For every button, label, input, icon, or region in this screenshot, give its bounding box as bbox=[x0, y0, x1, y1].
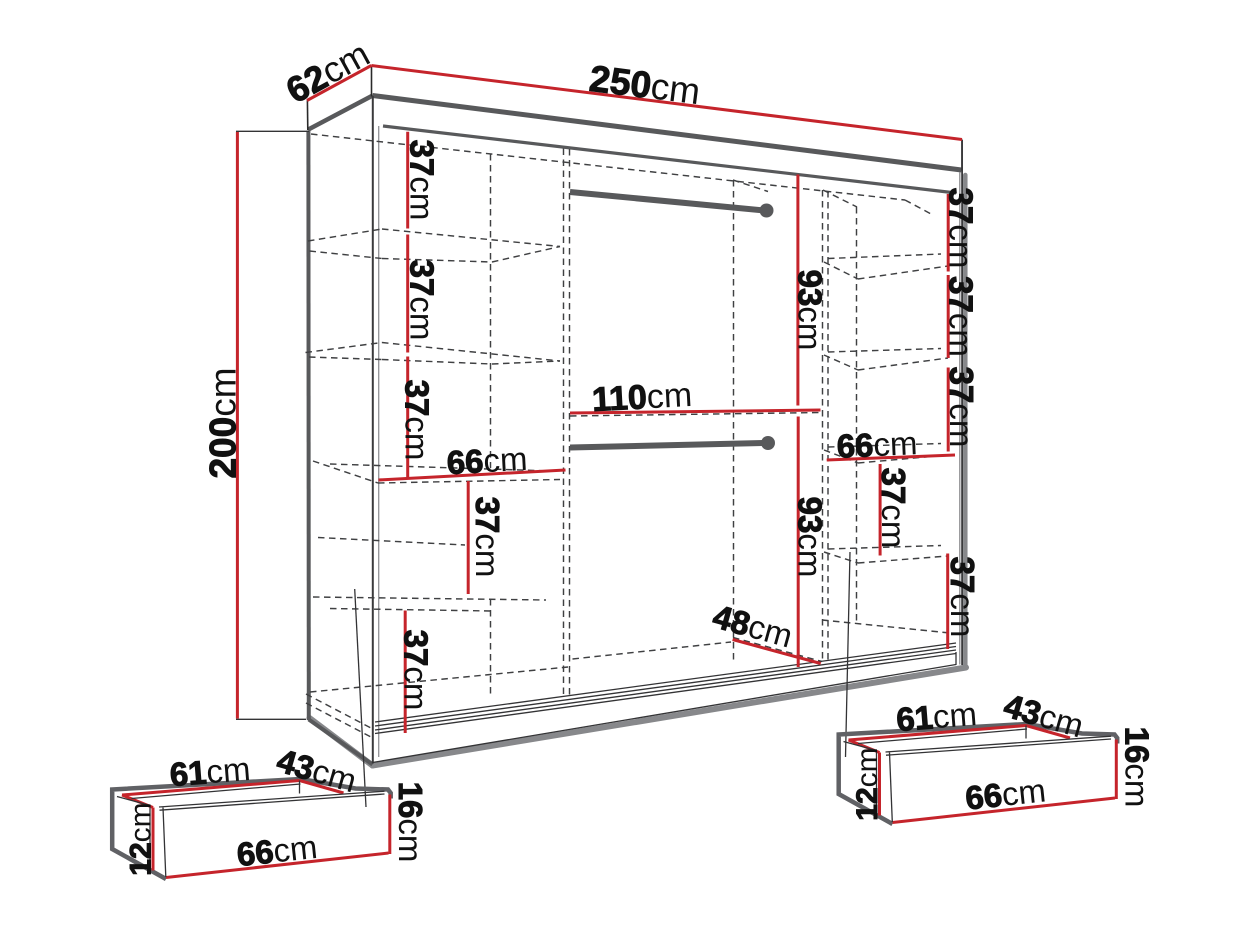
svg-text:37cm: 37cm bbox=[944, 557, 981, 638]
svg-text:37cm: 37cm bbox=[404, 140, 441, 221]
svg-text:37cm: 37cm bbox=[875, 468, 912, 549]
svg-text:37cm: 37cm bbox=[943, 188, 980, 269]
svg-text:37cm: 37cm bbox=[943, 276, 980, 357]
svg-text:37cm: 37cm bbox=[404, 260, 441, 341]
svg-text:61cm: 61cm bbox=[895, 695, 978, 738]
svg-text:16cm: 16cm bbox=[1119, 727, 1156, 808]
svg-text:12cm: 12cm bbox=[851, 747, 884, 820]
svg-text:16cm: 16cm bbox=[392, 782, 429, 863]
svg-text:93cm: 93cm bbox=[792, 270, 829, 351]
svg-text:93cm: 93cm bbox=[792, 497, 829, 578]
svg-text:37cm: 37cm bbox=[399, 380, 436, 461]
svg-text:12cm: 12cm bbox=[125, 802, 158, 875]
svg-text:37cm: 37cm bbox=[398, 630, 435, 711]
svg-text:37cm: 37cm bbox=[469, 497, 506, 578]
svg-text:61cm: 61cm bbox=[168, 750, 251, 793]
svg-text:66cm: 66cm bbox=[446, 440, 529, 481]
svg-text:66cm: 66cm bbox=[836, 424, 918, 464]
svg-text:110cm: 110cm bbox=[591, 376, 693, 419]
svg-text:200cm: 200cm bbox=[203, 367, 244, 478]
svg-text:37cm: 37cm bbox=[943, 367, 980, 448]
